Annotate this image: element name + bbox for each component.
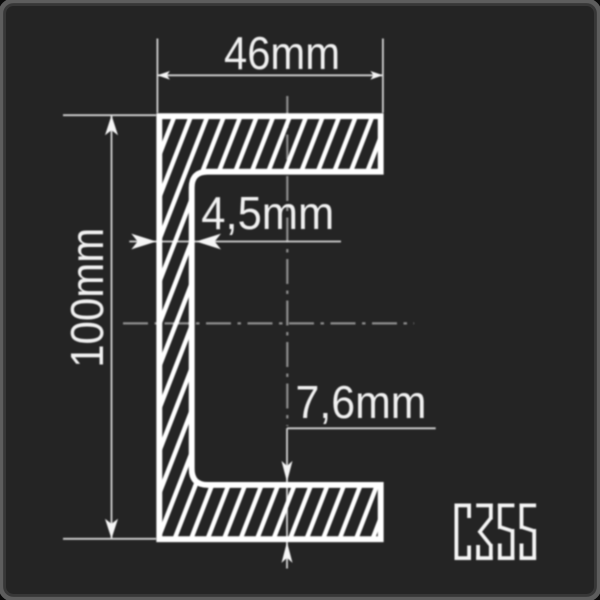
svg-text:4,5mm: 4,5mm: [201, 187, 334, 239]
svg-text:46mm: 46mm: [224, 27, 340, 79]
svg-text:7,6mm: 7,6mm: [296, 376, 427, 428]
svg-text:100mm: 100mm: [61, 228, 113, 368]
